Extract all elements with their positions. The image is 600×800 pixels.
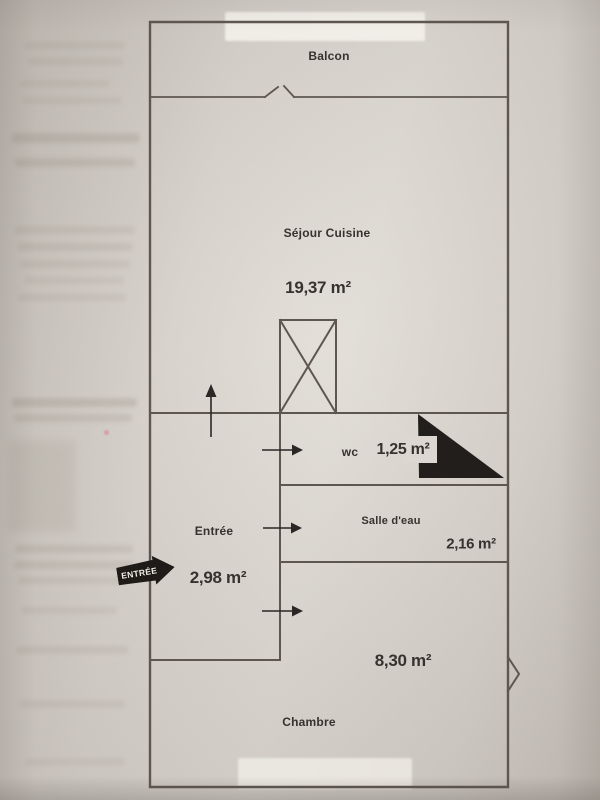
shaft-crossbox-icon [280, 320, 336, 413]
entrance-tag-label: ENTRÉE [118, 555, 160, 590]
room-label-wc: wc [342, 445, 358, 459]
outer-walls [150, 22, 508, 787]
room-label-balcon: Balcon [308, 49, 349, 63]
room-label-entree: Entrée [195, 524, 234, 538]
room-label-sejour-cuisine: Séjour Cuisine [284, 226, 371, 240]
floorplan-photo: Balcon Séjour Cuisine 19,37 m² wc 1,25 m… [0, 0, 600, 800]
room-area-sejour-cuisine: 19,37 m² [285, 278, 351, 298]
room-area-salle-eau: 2,16 m² [446, 536, 496, 553]
floorplan-linework [0, 0, 600, 800]
room-area-entree: 2,98 m² [190, 568, 247, 588]
right-arrow-icon [262, 606, 303, 617]
room-label-salle-eau: Salle d'eau [361, 515, 420, 527]
right-arrow-icon [263, 523, 302, 534]
right-arrow-icon [262, 445, 303, 456]
room-area-chambre: 8,30 m² [375, 651, 432, 671]
up-arrow-icon [206, 384, 217, 437]
room-area-wc: 1,25 m² [376, 441, 429, 459]
window-chevron-icon [508, 657, 519, 691]
door-break-icon [265, 86, 294, 97]
room-label-chambre: Chambre [282, 715, 335, 729]
